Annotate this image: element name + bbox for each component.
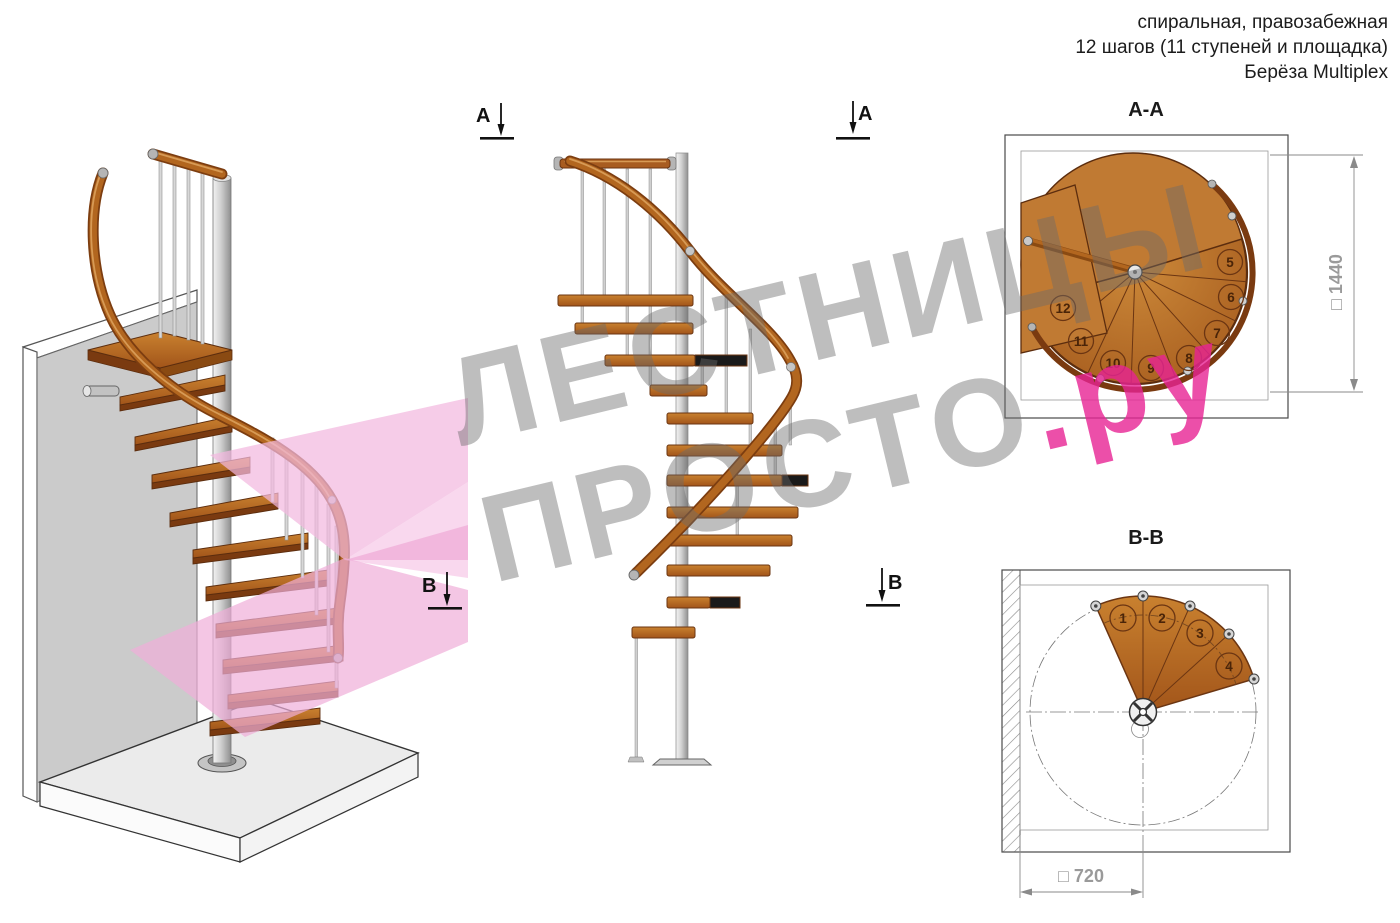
- plan-bb-view: 1 2 3 4 □ 720: [995, 520, 1400, 923]
- section-marker-a-left: А: [472, 100, 524, 148]
- plan-aa-dimension-label: □ 1440: [1326, 254, 1346, 310]
- step-number: 4: [1225, 659, 1233, 674]
- elevation-view: [540, 145, 910, 785]
- drawing-canvas: спиральная, правозабежная 12 шагов (11 с…: [0, 0, 1400, 923]
- step-number: 12: [1055, 301, 1070, 316]
- step-number: 3: [1196, 626, 1204, 641]
- section-marker-b-right: В: [862, 563, 914, 611]
- step-number: 7: [1213, 326, 1221, 341]
- section-marker-b-left: В: [418, 568, 470, 616]
- plan-bb-dimension: □ 720: [1020, 835, 1143, 898]
- section-arrow-icon: [444, 594, 451, 606]
- plan-bb-step-fan: [1091, 591, 1259, 712]
- spec-header: спиральная, правозабежная 12 шагов (11 с…: [1075, 10, 1388, 85]
- plan-aa-dimension: □ 1440: [1270, 155, 1363, 392]
- section-marker-letter: А: [476, 105, 490, 127]
- step-number: 9: [1147, 361, 1155, 376]
- section-arrow-icon: [850, 122, 857, 134]
- step-number: 2: [1158, 611, 1166, 626]
- section-arrow-icon: [879, 590, 886, 602]
- section-arrow-icon: [498, 124, 505, 136]
- step-number: 8: [1185, 351, 1193, 366]
- tread-6: [193, 533, 308, 564]
- spec-line-material: Берёза Multiplex: [1075, 60, 1388, 85]
- section-marker-letter: А: [858, 103, 872, 125]
- plan-bb-center-pole: [1130, 699, 1157, 738]
- spec-line-steps: 12 шагов (11 ступеней и площадка): [1075, 35, 1388, 60]
- wall-handrail-stub: [83, 386, 119, 397]
- section-marker-a-right: А: [833, 98, 885, 146]
- plan-aa-center-pole: [1128, 265, 1142, 279]
- step-number: 11: [1074, 334, 1089, 349]
- step-number: 6: [1227, 290, 1235, 305]
- plan-aa-title: А-А: [995, 99, 1297, 122]
- plan-bb-dimension-label: □ 720: [1058, 866, 1104, 886]
- plan-aa-view: 5 6 7 8 9 10 11 12 □ 1440: [995, 125, 1400, 435]
- spec-line-type: спиральная, правозабежная: [1075, 10, 1388, 35]
- section-marker-letter: В: [888, 572, 902, 594]
- section-marker-letter: В: [422, 575, 436, 597]
- isometric-3d-view: [10, 130, 475, 870]
- step-number: 10: [1105, 356, 1120, 371]
- step-number: 5: [1226, 255, 1234, 270]
- plan-bb-wall-hatch: [1002, 570, 1020, 852]
- step-number: 1: [1119, 611, 1127, 626]
